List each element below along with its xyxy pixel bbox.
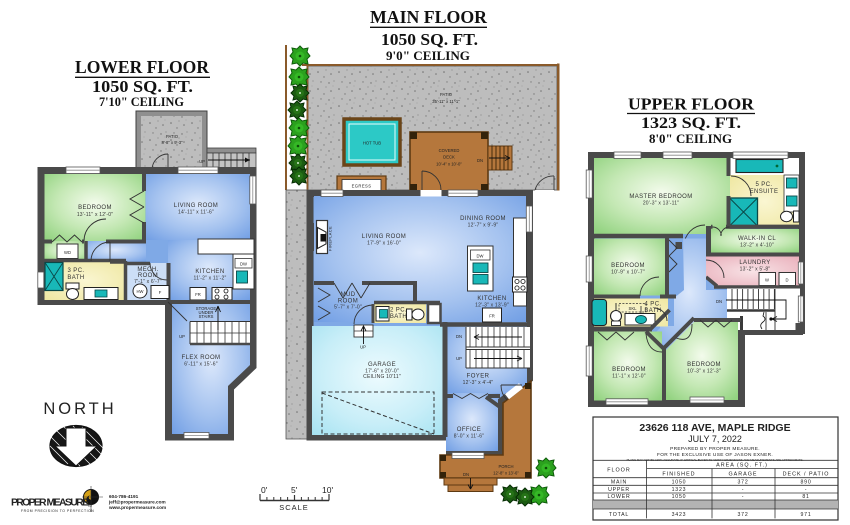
svg-text:UP: UP — [179, 334, 185, 339]
svg-text:17'-9" x 16'-0": 17'-9" x 16'-0" — [367, 241, 401, 247]
svg-text:FIREPLACE: FIREPLACE — [328, 226, 333, 251]
svg-text:11'-2" x 11'-2": 11'-2" x 11'-2" — [193, 276, 226, 282]
svg-text:DN: DN — [477, 158, 483, 163]
svg-text:HW: HW — [137, 289, 144, 294]
svg-text:DW: DW — [477, 254, 484, 259]
svg-text:TOTAL: TOTAL — [609, 512, 629, 518]
svg-text:-: - — [805, 487, 808, 493]
svg-text:11'-1" x 12'-0": 11'-1" x 12'-0" — [612, 374, 645, 380]
svg-text:5'-7" x 7'-0": 5'-7" x 7'-0" — [334, 305, 362, 311]
svg-text:-: - — [742, 487, 745, 493]
svg-text:JULY 7, 2022: JULY 7, 2022 — [688, 434, 742, 444]
svg-text:13'-2" x 4'-10": 13'-2" x 4'-10" — [740, 243, 774, 249]
svg-text:BATH: BATH — [67, 275, 84, 281]
svg-text:372: 372 — [737, 512, 748, 518]
svg-text:KITCHEN: KITCHEN — [477, 296, 506, 302]
svg-text:ENSUITE: ENSUITE — [750, 189, 779, 195]
svg-text:MAIN: MAIN — [611, 479, 627, 485]
svg-text:6'-11" x 15'-6": 6'-11" x 15'-6" — [184, 362, 217, 368]
svg-text:KITCHEN: KITCHEN — [195, 269, 224, 275]
svg-text:TM: TM — [88, 504, 93, 508]
svg-text:372: 372 — [737, 479, 748, 485]
svg-text:8'-8" x 9'-3": 8'-8" x 9'-3" — [161, 140, 183, 145]
svg-text:COVERED: COVERED — [439, 148, 460, 153]
svg-text:81: 81 — [802, 494, 809, 500]
svg-text:13'-11" x 12'-0": 13'-11" x 12'-0" — [77, 212, 113, 218]
svg-text:F: F — [159, 290, 162, 295]
svg-text:AREA (SQ. FT.): AREA (SQ. FT.) — [716, 463, 768, 469]
svg-text:STAIRS: STAIRS — [199, 314, 214, 319]
svg-text:DECK / PATIO: DECK / PATIO — [783, 471, 830, 477]
svg-text:UP: UP — [456, 356, 462, 361]
svg-text:9'0" CEILING: 9'0" CEILING — [386, 48, 470, 63]
svg-text:971: 971 — [800, 512, 811, 518]
svg-text:10'-4" x 10'-0": 10'-4" x 10'-0" — [436, 162, 462, 167]
svg-text:EGRESS: EGRESS — [352, 184, 372, 189]
svg-text:GARAGE: GARAGE — [368, 362, 396, 368]
svg-text:PREPARED BY PROPER MEASURE.: PREPARED BY PROPER MEASURE. — [670, 446, 760, 452]
svg-text:604-786-4191: 604-786-4191 — [109, 494, 139, 499]
svg-text:MAIN FLOOR: MAIN FLOOR — [370, 7, 487, 27]
svg-text:FINISHED: FINISHED — [662, 471, 695, 477]
svg-text:BEDROOM: BEDROOM — [687, 362, 721, 368]
svg-text:PROPER: PROPER — [11, 497, 47, 509]
svg-text:FLOOR: FLOOR — [607, 468, 631, 474]
svg-text:W: W — [765, 278, 769, 283]
svg-text:20'-3" x 13'-11": 20'-3" x 13'-11" — [643, 201, 679, 207]
svg-text:DN: DN — [456, 334, 462, 339]
svg-text:LAUNDRY: LAUNDRY — [739, 260, 770, 266]
svg-text:13'-2" x 5'-8": 13'-2" x 5'-8" — [740, 266, 771, 272]
svg-text:BATH: BATH — [390, 314, 407, 320]
svg-text:10': 10' — [322, 485, 333, 495]
svg-text:23626 118 AVE, MAPLE RIDGE: 23626 118 AVE, MAPLE RIDGE — [639, 422, 790, 434]
svg-text:FROM PRECISION TO PERFECTION: FROM PRECISION TO PERFECTION — [21, 509, 94, 513]
svg-text:UP: UP — [360, 345, 366, 350]
svg-text:SKL: SKL — [629, 306, 638, 311]
svg-text:35'-11" x 11'-1": 35'-11" x 11'-1" — [432, 99, 460, 104]
svg-text:SCALE: SCALE — [279, 503, 309, 512]
svg-text:0': 0' — [261, 485, 268, 495]
svg-text:FR: FR — [195, 292, 201, 297]
svg-text:PATIO: PATIO — [166, 134, 179, 139]
svg-text:DINING ROOM: DINING ROOM — [460, 216, 506, 222]
svg-text:D: D — [785, 278, 788, 283]
svg-text:MEASURE: MEASURE — [47, 497, 90, 509]
svg-text:FOYER: FOYER — [467, 374, 490, 380]
svg-text:BEDROOM: BEDROOM — [78, 205, 112, 211]
svg-text:UPPER: UPPER — [608, 487, 630, 493]
svg-text:1050: 1050 — [672, 479, 687, 485]
svg-text:MUD: MUD — [341, 292, 356, 298]
svg-text:1050 SQ. FT.: 1050 SQ. FT. — [381, 30, 478, 49]
svg-text:DECK: DECK — [443, 155, 455, 160]
svg-text:PORCH: PORCH — [498, 464, 513, 469]
svg-text:WD: WD — [64, 250, 71, 255]
svg-text:2 PC.: 2 PC. — [390, 308, 407, 314]
svg-text:jeff@propermeasure.com: jeff@propermeasure.com — [108, 500, 166, 505]
svg-text:3423: 3423 — [672, 512, 687, 518]
svg-text:MASTER BEDROOM: MASTER BEDROOM — [629, 194, 692, 200]
svg-text:FR: FR — [489, 314, 495, 319]
svg-text:LIVING ROOM: LIVING ROOM — [174, 203, 218, 209]
svg-text:1323 SQ. FT.: 1323 SQ. FT. — [641, 115, 741, 132]
svg-text:LOWER: LOWER — [607, 494, 630, 500]
svg-text:10'-3" x 12'-3": 10'-3" x 12'-3" — [687, 369, 721, 375]
svg-text:12'-7" x 9'-9": 12'-7" x 9'-9" — [468, 223, 499, 229]
svg-text:12'-8" x 13'-6": 12'-8" x 13'-6" — [493, 471, 519, 476]
svg-text:UP: UP — [199, 159, 205, 164]
svg-text:10'-9" x 10'-7": 10'-9" x 10'-7" — [611, 270, 645, 276]
svg-text:5 PC.: 5 PC. — [755, 182, 772, 188]
svg-text:1050: 1050 — [672, 494, 687, 500]
svg-text:FLEX ROOM: FLEX ROOM — [182, 355, 221, 361]
svg-text:3 PC.: 3 PC. — [67, 268, 84, 274]
svg-text:HOT TUB: HOT TUB — [363, 141, 381, 146]
svg-text:890: 890 — [800, 479, 811, 485]
svg-text:LOWER FLOOR: LOWER FLOOR — [75, 57, 209, 77]
svg-text:www.propermeasure.com: www.propermeasure.com — [108, 505, 166, 510]
svg-text:PATIO: PATIO — [440, 92, 453, 97]
svg-text:12'-3" x 4'-4": 12'-3" x 4'-4" — [463, 380, 494, 386]
svg-text:WALK-IN CL: WALK-IN CL — [738, 236, 776, 242]
svg-text:4 PC.: 4 PC. — [644, 302, 661, 308]
svg-text:CEILING 10'11": CEILING 10'11" — [363, 374, 401, 380]
svg-text:UPPER FLOOR: UPPER FLOOR — [628, 95, 755, 114]
svg-text:DN: DN — [716, 299, 722, 304]
svg-text:DW: DW — [240, 262, 247, 267]
svg-text:GARAGE: GARAGE — [728, 471, 757, 477]
svg-text:14'-11" x 11'-6": 14'-11" x 11'-6" — [178, 210, 214, 216]
svg-text:-: - — [742, 494, 745, 500]
svg-text:1323: 1323 — [672, 487, 687, 493]
svg-text:8'-0" x 11'-6": 8'-0" x 11'-6" — [454, 434, 484, 440]
svg-text:NORTH: NORTH — [43, 400, 116, 418]
svg-text:8'0" CEILING: 8'0" CEILING — [649, 132, 732, 146]
svg-text:BEDROOM: BEDROOM — [611, 263, 645, 269]
svg-text:OFFICE: OFFICE — [457, 427, 481, 433]
svg-text:BEDROOM: BEDROOM — [612, 367, 646, 373]
svg-text:DN: DN — [463, 472, 469, 477]
svg-text:7'10" CEILING: 7'10" CEILING — [99, 94, 184, 109]
svg-text:5': 5' — [291, 485, 298, 495]
svg-text:LIVING ROOM: LIVING ROOM — [362, 234, 406, 240]
